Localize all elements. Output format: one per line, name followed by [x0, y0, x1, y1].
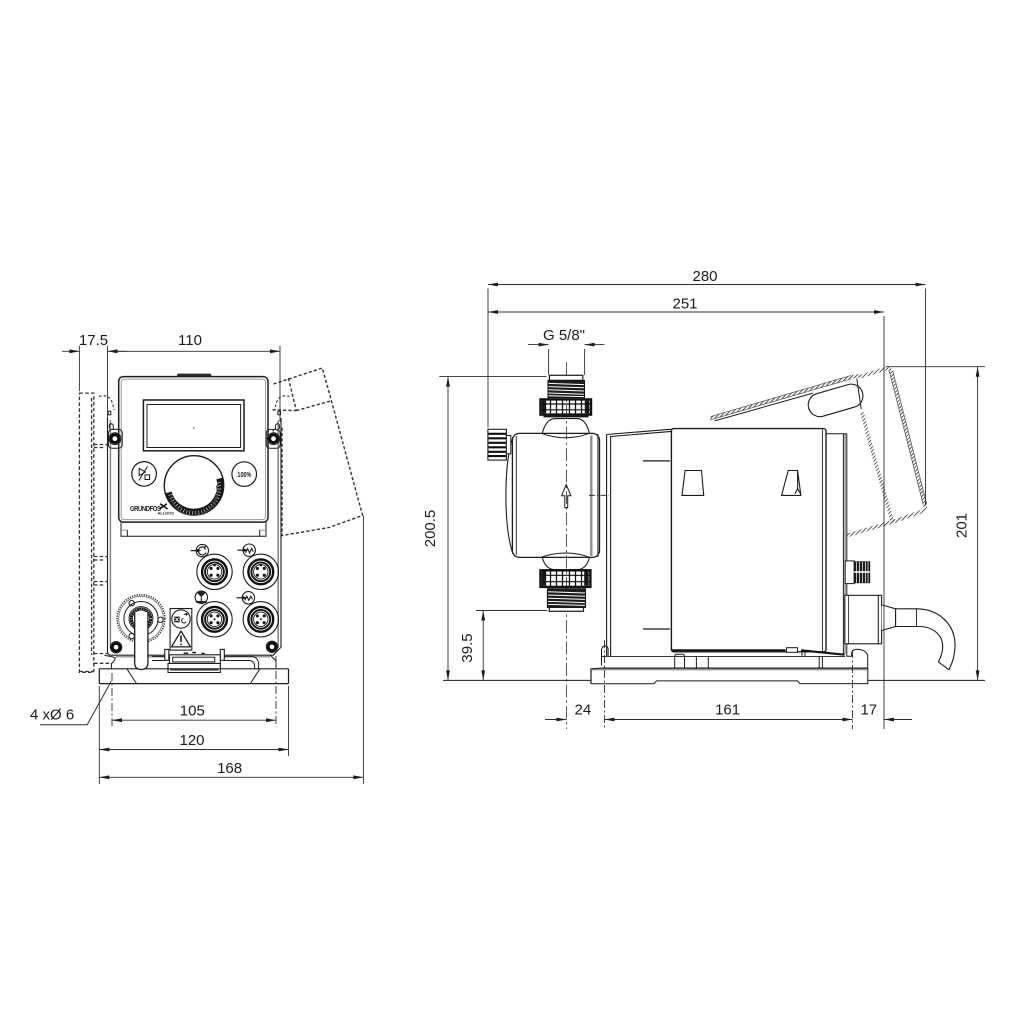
svg-text:120: 120 [179, 732, 204, 749]
svg-text:39.5: 39.5 [459, 633, 476, 662]
svg-text:168: 168 [217, 760, 242, 777]
svg-text:251: 251 [672, 296, 697, 313]
svg-text:G 5/8": G 5/8" [543, 327, 585, 344]
svg-text:100%: 100% [237, 471, 251, 479]
svg-text:200.5: 200.5 [422, 510, 439, 548]
svg-text:24: 24 [575, 702, 592, 719]
svg-text:4 xØ 6: 4 xØ 6 [30, 707, 74, 724]
svg-text:ALLDOS: ALLDOS [158, 510, 175, 515]
svg-text:105: 105 [180, 703, 205, 720]
svg-text:17.5: 17.5 [79, 332, 108, 349]
svg-text:17: 17 [860, 702, 877, 719]
svg-text:161: 161 [715, 702, 740, 719]
svg-text:110: 110 [178, 332, 202, 349]
svg-text:280: 280 [692, 268, 717, 285]
svg-text:201: 201 [954, 513, 971, 538]
